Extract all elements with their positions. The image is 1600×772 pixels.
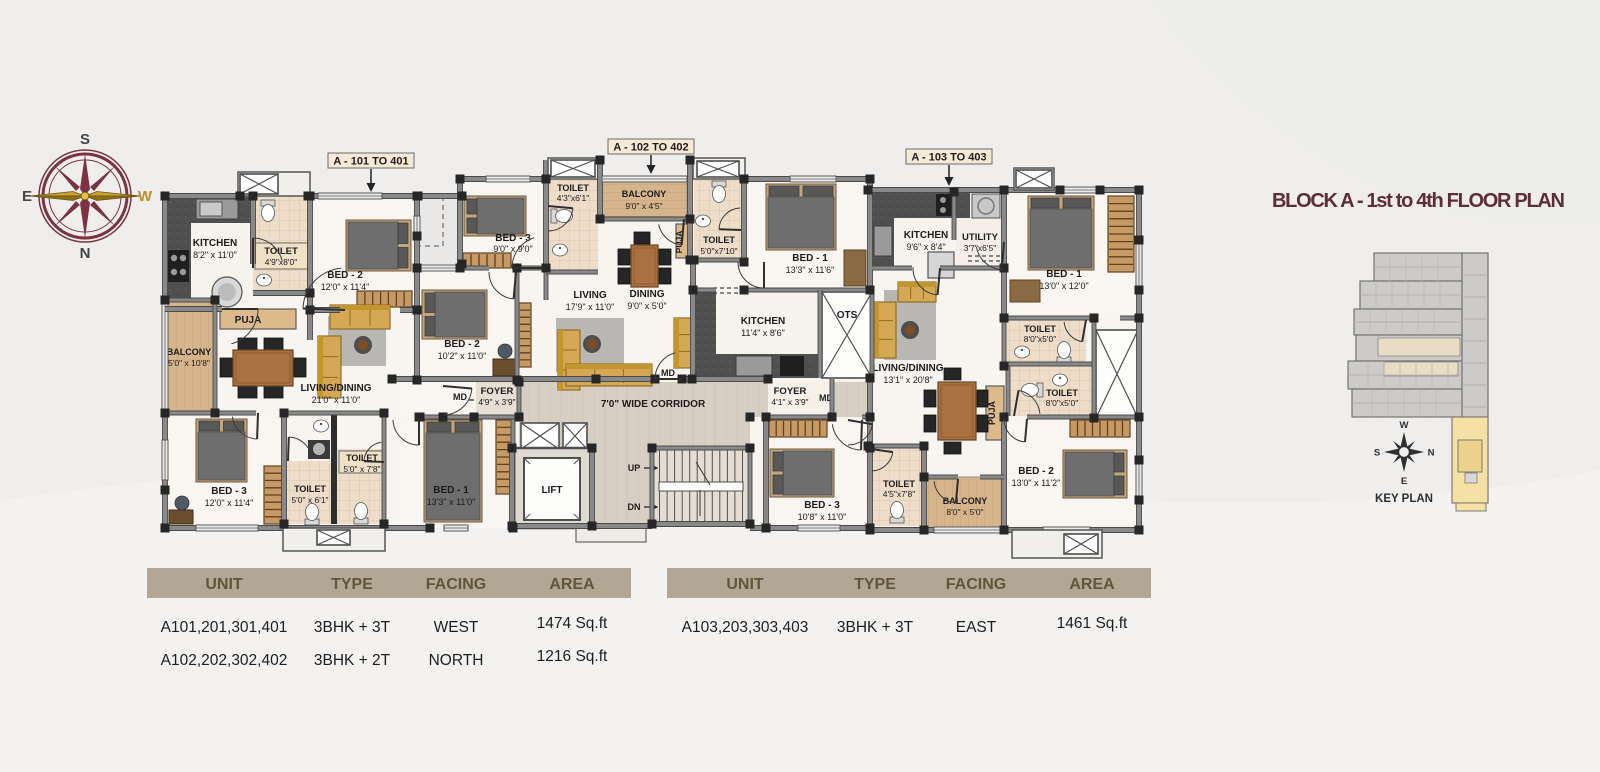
svg-text:BED - 1: BED - 1 — [433, 485, 469, 496]
svg-text:1461 Sq.ft: 1461 Sq.ft — [1057, 615, 1128, 632]
svg-text:8'0"x5'0": 8'0"x5'0" — [1046, 398, 1078, 408]
svg-text:5'0" x 10'8": 5'0" x 10'8" — [168, 358, 210, 368]
svg-text:17'9" x 11'0": 17'9" x 11'0" — [566, 302, 615, 312]
svg-text:UP: UP — [628, 463, 641, 473]
svg-text:E: E — [22, 188, 32, 205]
svg-text:MD: MD — [453, 392, 467, 402]
svg-text:KEY PLAN: KEY PLAN — [1375, 493, 1433, 505]
svg-text:LIVING: LIVING — [573, 290, 607, 301]
svg-text:BALCONY: BALCONY — [622, 189, 667, 199]
svg-text:8'2" x 11'0": 8'2" x 11'0" — [193, 250, 237, 260]
svg-text:11'4" x 8'6": 11'4" x 8'6" — [741, 328, 785, 338]
svg-text:W: W — [138, 188, 153, 205]
svg-text:5'0" x 7'8": 5'0" x 7'8" — [343, 464, 380, 474]
svg-text:4'9" x 3'9": 4'9" x 3'9" — [478, 397, 515, 407]
svg-text:UNIT: UNIT — [205, 576, 243, 593]
svg-text:BED - 2: BED - 2 — [327, 270, 363, 281]
svg-text:4'3"x6'1": 4'3"x6'1" — [557, 193, 589, 203]
svg-text:8'0"x5'0": 8'0"x5'0" — [1024, 334, 1056, 344]
svg-text:BED - 3: BED - 3 — [804, 500, 840, 511]
svg-text:OTS: OTS — [837, 310, 858, 321]
svg-text:TOILET: TOILET — [1046, 388, 1078, 398]
svg-text:3BHK + 2T: 3BHK + 2T — [314, 652, 391, 669]
svg-text:A - 101 TO 401: A - 101 TO 401 — [333, 156, 408, 168]
svg-text:W: W — [1400, 420, 1409, 431]
svg-text:3'7"x6'5": 3'7"x6'5" — [964, 243, 996, 253]
svg-text:N: N — [1428, 448, 1435, 459]
svg-text:S: S — [1374, 448, 1380, 459]
svg-text:21'0" x 11'0": 21'0" x 11'0" — [312, 395, 361, 405]
svg-text:TOILET: TOILET — [264, 246, 298, 257]
svg-text:4'1" x 3'9": 4'1" x 3'9" — [771, 397, 808, 407]
svg-text:PUJA: PUJA — [987, 401, 997, 426]
svg-text:N: N — [80, 245, 91, 262]
svg-text:AREA: AREA — [549, 576, 595, 593]
svg-text:TYPE: TYPE — [854, 576, 896, 593]
svg-text:1474 Sq.ft: 1474 Sq.ft — [537, 615, 608, 632]
svg-text:12'0" x 11'4": 12'0" x 11'4" — [205, 498, 254, 508]
svg-text:TYPE: TYPE — [331, 576, 373, 593]
svg-text:BALCONY: BALCONY — [167, 347, 212, 357]
svg-text:9'0" x 4'5": 9'0" x 4'5" — [625, 201, 662, 211]
svg-text:DINING: DINING — [630, 289, 665, 300]
svg-text:DN: DN — [628, 502, 641, 512]
svg-text:MD: MD — [661, 368, 675, 378]
svg-text:EAST: EAST — [956, 619, 997, 636]
svg-text:FOYER: FOYER — [481, 386, 514, 397]
svg-text:E: E — [1401, 476, 1407, 487]
svg-text:A102,202,302,402: A102,202,302,402 — [161, 652, 288, 669]
svg-text:LIVING/DINING: LIVING/DINING — [300, 383, 371, 394]
svg-text:7'0" WIDE CORRIDOR: 7'0" WIDE CORRIDOR — [601, 399, 706, 410]
svg-text:8'0" x 5'0": 8'0" x 5'0" — [946, 507, 983, 517]
svg-text:9'6" x 8'4": 9'6" x 8'4" — [906, 242, 945, 252]
svg-text:10'8" x 11'0": 10'8" x 11'0" — [798, 512, 847, 522]
svg-text:TOILET: TOILET — [703, 235, 735, 245]
svg-text:TOILET: TOILET — [1024, 324, 1056, 334]
svg-text:NORTH: NORTH — [429, 652, 484, 669]
svg-text:BED - 1: BED - 1 — [792, 253, 828, 264]
svg-text:13'1" x 20'8": 13'1" x 20'8" — [883, 375, 932, 385]
svg-text:3BHK + 3T: 3BHK + 3T — [837, 619, 914, 636]
svg-text:A101,201,301,401: A101,201,301,401 — [161, 619, 288, 636]
svg-text:FACING: FACING — [946, 576, 1006, 593]
svg-text:9'0" x 5'0": 9'0" x 5'0" — [627, 301, 666, 311]
svg-text:4'5"x7'8": 4'5"x7'8" — [883, 489, 915, 499]
svg-text:KITCHEN: KITCHEN — [904, 230, 948, 241]
svg-text:A - 103 TO 403: A - 103 TO 403 — [911, 152, 986, 164]
svg-text:BED - 2: BED - 2 — [1018, 466, 1054, 477]
svg-text:BED - 2: BED - 2 — [444, 339, 480, 350]
svg-text:1216 Sq.ft: 1216 Sq.ft — [537, 648, 608, 665]
svg-text:BED - 1: BED - 1 — [1046, 269, 1082, 280]
svg-text:13'3" x 11'6": 13'3" x 11'6" — [786, 265, 835, 275]
svg-text:LIVING/DINING: LIVING/DINING — [872, 363, 943, 374]
svg-text:5'0"x7'10": 5'0"x7'10" — [700, 246, 737, 256]
svg-text:BED - 3: BED - 3 — [211, 486, 247, 497]
svg-text:KITCHEN: KITCHEN — [193, 238, 237, 249]
svg-text:S: S — [80, 131, 90, 148]
svg-text:3BHK + 3T: 3BHK + 3T — [314, 619, 391, 636]
svg-text:13'0" x 11'2": 13'0" x 11'2" — [1012, 478, 1061, 488]
svg-text:13'3" x 11'0": 13'3" x 11'0" — [427, 497, 476, 507]
svg-text:BLOCK A - 1st to 4th FLOOR PLA: BLOCK A - 1st to 4th FLOOR PLAN — [1272, 190, 1565, 212]
svg-text:TOILET: TOILET — [294, 484, 326, 494]
svg-text:A103,203,303,403: A103,203,303,403 — [682, 619, 809, 636]
svg-text:AREA: AREA — [1069, 576, 1115, 593]
svg-text:13'0" x 12'0": 13'0" x 12'0" — [1039, 281, 1088, 291]
svg-text:UNIT: UNIT — [726, 576, 764, 593]
svg-text:UTILITY: UTILITY — [962, 232, 999, 243]
svg-text:KITCHEN: KITCHEN — [741, 316, 785, 327]
svg-text:TOILET: TOILET — [557, 183, 589, 193]
svg-text:FACING: FACING — [426, 576, 486, 593]
svg-text:A - 102 TO 402: A - 102 TO 402 — [613, 142, 688, 154]
svg-text:10'2" x 11'0": 10'2" x 11'0" — [438, 351, 487, 361]
svg-text:FOYER: FOYER — [774, 386, 807, 397]
svg-text:LIFT: LIFT — [541, 485, 562, 496]
svg-text:BED - 3: BED - 3 — [495, 233, 531, 244]
svg-text:TOILET: TOILET — [883, 479, 915, 489]
svg-text:WEST: WEST — [434, 619, 479, 636]
